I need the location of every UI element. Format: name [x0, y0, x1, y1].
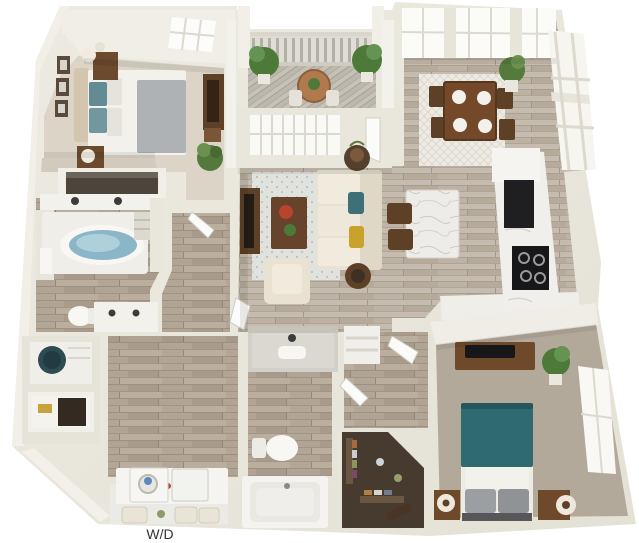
svg-text:W/D: W/D: [146, 526, 173, 542]
